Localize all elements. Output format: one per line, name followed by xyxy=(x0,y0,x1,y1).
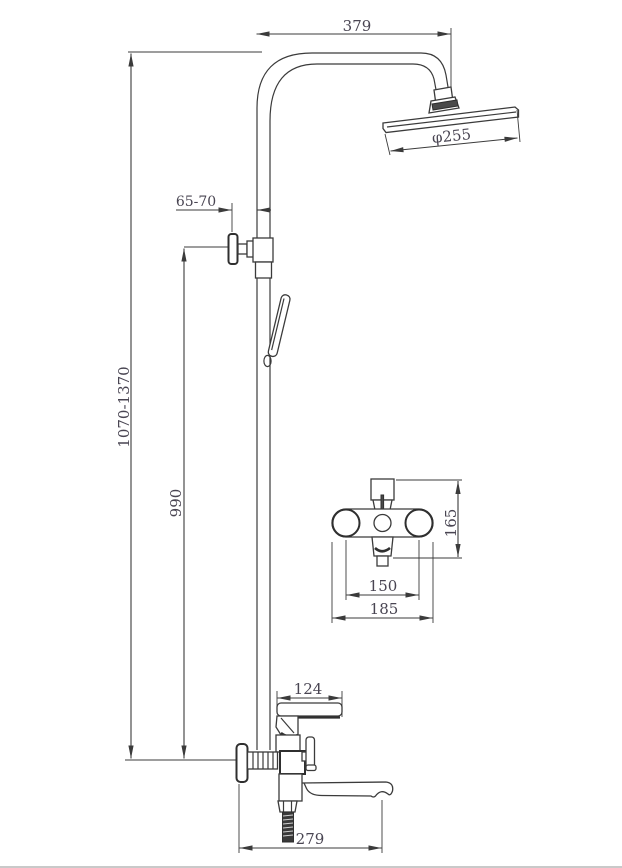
dim-handle-length-label: 124 xyxy=(294,680,323,698)
mixer-detail-view xyxy=(332,479,433,566)
lower-valve-body xyxy=(280,751,305,774)
mixer-cartridge xyxy=(374,515,391,532)
shower-system-drawing: 1070-1370 990 65-70 379 φ255 xyxy=(0,0,622,868)
threaded-rod xyxy=(283,812,294,842)
dim-spout-reach-label: 279 xyxy=(296,830,325,848)
mixer-left-flange xyxy=(333,510,360,537)
dim-riser-height: 990 xyxy=(167,247,230,759)
upper-wall-bracket xyxy=(229,234,274,278)
bath-spout-assembly xyxy=(237,703,393,842)
dim-arm-reach-label: 379 xyxy=(343,17,372,35)
bracket-slider xyxy=(253,238,273,262)
lower-wall-flange xyxy=(237,744,248,782)
dim-riser-height-label: 990 xyxy=(167,489,185,518)
dim-wall-offset-label: 65-70 xyxy=(176,194,216,210)
hand-shower xyxy=(264,294,291,367)
dim-overall-height-label: 1070-1370 xyxy=(115,366,133,447)
mixer-outlet xyxy=(372,537,393,556)
dim-overall-height: 1070-1370 xyxy=(115,52,262,760)
bracket-flange xyxy=(229,234,238,264)
tub-spout xyxy=(302,782,393,797)
shower-arm xyxy=(257,53,459,239)
dim-mixer-height-label: 165 xyxy=(442,509,460,538)
mixer-right-flange xyxy=(406,510,433,537)
dim-arm-reach: 379 xyxy=(257,17,452,96)
hex-nut xyxy=(278,801,297,812)
dim-mixer-hole-spacing-label: 150 xyxy=(369,577,398,595)
dim-mixer-width-label: 185 xyxy=(370,600,399,618)
lower-lever-handle xyxy=(277,703,342,716)
technical-drawing-page: 1070-1370 990 65-70 379 φ255 xyxy=(0,0,622,868)
riser-pipe xyxy=(257,278,270,750)
